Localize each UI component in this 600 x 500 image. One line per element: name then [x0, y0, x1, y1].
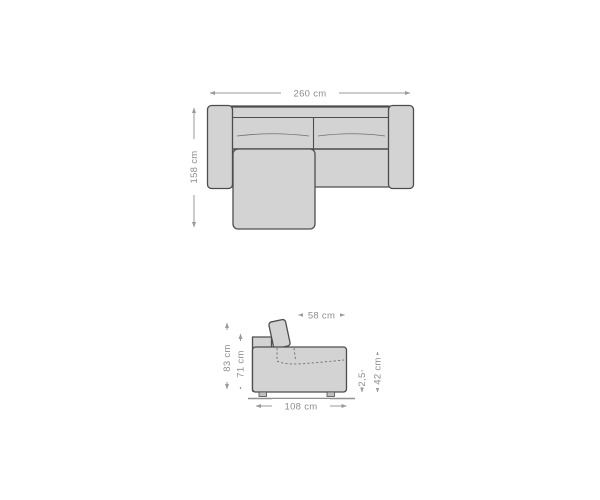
- dim-back-height: 71 cm: [234, 334, 248, 389]
- dim-side-depth-label: 108 cm: [285, 402, 318, 413]
- left-armrest: [208, 106, 233, 189]
- dim-side-depth: 108 cm: [256, 399, 347, 413]
- dim-seat-depth: 58 cm: [299, 308, 345, 322]
- dim-seat-depth-label: 58 cm: [308, 311, 335, 322]
- sofa-dimension-diagram: 260 cm 158 cm 58 cm: [0, 0, 600, 500]
- dim-seat-height: 42 cm: [371, 352, 385, 392]
- dim-total-height: 83 cm: [220, 323, 234, 389]
- dim-depth: 158 cm: [187, 108, 201, 227]
- dim-foot-height-label: 2,5: [357, 372, 368, 386]
- dim-foot-height: 2,5: [355, 370, 369, 392]
- sofa-foot-left: [259, 392, 267, 397]
- top-view: 260 cm 158 cm: [187, 86, 414, 229]
- right-armrest: [389, 106, 414, 189]
- diagram-canvas: 260 cm 158 cm 58 cm: [0, 0, 600, 500]
- dim-width-label: 260 cm: [294, 89, 327, 100]
- chaise-longue: [233, 149, 315, 229]
- dim-back-height-label: 71 cm: [236, 350, 247, 377]
- dim-seat-height-label: 42 cm: [373, 357, 384, 384]
- sofa-body-side: [253, 347, 347, 392]
- side-view: 58 cm 83 cm 71 cm 2,5: [220, 308, 385, 413]
- dim-depth-label: 158 cm: [189, 151, 200, 184]
- dim-total-height-label: 83 cm: [222, 344, 233, 371]
- sofa-foot-right: [327, 392, 335, 397]
- dim-width: 260 cm: [210, 86, 410, 100]
